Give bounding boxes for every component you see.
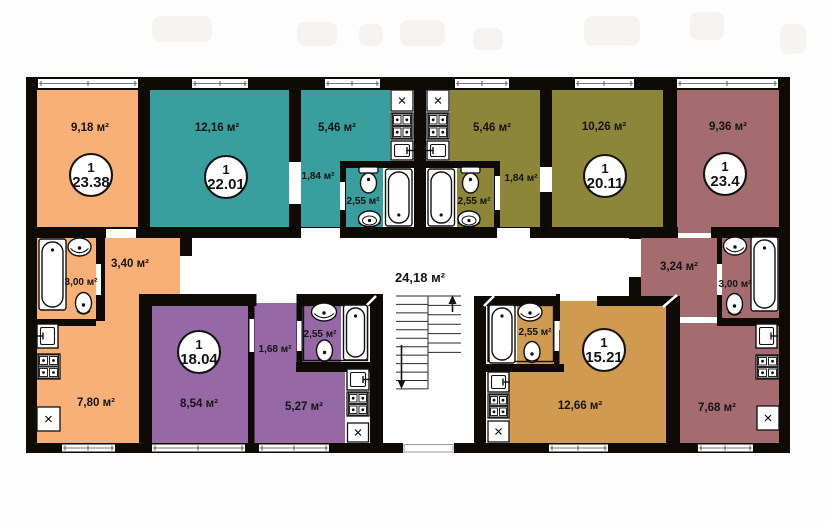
svg-text:2,55 м²: 2,55 м² <box>519 327 553 338</box>
svg-text:3,00 м²: 3,00 м² <box>719 279 753 290</box>
svg-text:7,68 м²: 7,68 м² <box>698 402 736 414</box>
svg-text:1: 1 <box>222 162 229 177</box>
svg-text:24,18 м²: 24,18 м² <box>395 270 446 285</box>
svg-text:9,18 м²: 9,18 м² <box>71 122 109 134</box>
svg-text:5,46 м²: 5,46 м² <box>318 122 356 134</box>
svg-text:15.21: 15.21 <box>585 349 623 366</box>
svg-text:12,16 м²: 12,16 м² <box>195 122 239 134</box>
svg-text:1: 1 <box>600 335 607 350</box>
svg-text:23.38: 23.38 <box>72 174 110 191</box>
svg-text:1,84 м²: 1,84 м² <box>505 173 539 184</box>
svg-text:9,36 м²: 9,36 м² <box>709 121 747 133</box>
svg-text:12,66 м²: 12,66 м² <box>558 400 602 412</box>
svg-text:1: 1 <box>601 161 608 176</box>
svg-text:1,84 м²: 1,84 м² <box>302 171 336 182</box>
svg-text:18.04: 18.04 <box>180 351 218 368</box>
svg-text:8,54 м²: 8,54 м² <box>180 398 218 410</box>
svg-text:1: 1 <box>721 159 728 174</box>
svg-text:5,27 м²: 5,27 м² <box>285 401 323 413</box>
svg-text:1: 1 <box>87 160 94 175</box>
svg-text:23.4: 23.4 <box>710 173 740 190</box>
svg-text:3,40 м²: 3,40 м² <box>111 258 149 270</box>
svg-text:3,00 м²: 3,00 м² <box>65 277 99 288</box>
svg-text:22.01: 22.01 <box>207 176 245 193</box>
svg-text:20.11: 20.11 <box>587 175 624 192</box>
svg-text:3,24 м²: 3,24 м² <box>660 261 698 273</box>
svg-text:5,46 м²: 5,46 м² <box>473 122 511 134</box>
svg-text:2,55 м²: 2,55 м² <box>347 196 381 207</box>
svg-text:1,68 м²: 1,68 м² <box>259 344 293 355</box>
svg-text:1: 1 <box>195 337 202 352</box>
svg-text:2,55 м²: 2,55 м² <box>304 329 338 340</box>
svg-text:10,26 м²: 10,26 м² <box>582 121 626 133</box>
svg-text:2,55 м²: 2,55 м² <box>458 196 492 207</box>
svg-text:7,80 м²: 7,80 м² <box>77 397 115 409</box>
